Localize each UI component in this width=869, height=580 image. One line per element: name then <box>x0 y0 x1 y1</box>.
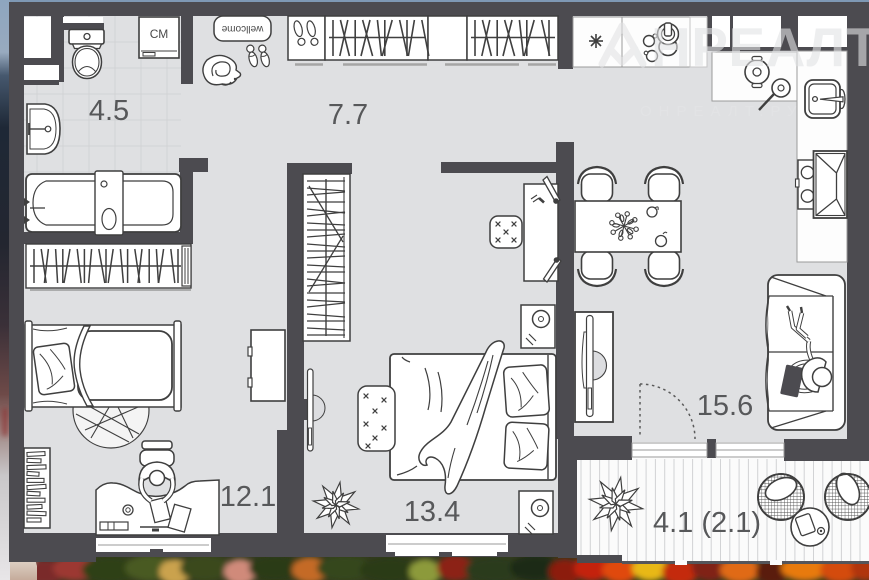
svg-text:4.1 (2.1): 4.1 (2.1) <box>653 507 761 539</box>
svg-text:НРЕАЛТ: НРЕАЛТ <box>651 16 869 78</box>
svg-text:4.5: 4.5 <box>89 95 129 127</box>
svg-text:7.7: 7.7 <box>328 99 368 131</box>
svg-text:wellcome: wellcome <box>221 23 264 34</box>
svg-text:12.1: 12.1 <box>220 481 276 513</box>
svg-text:СМ: СМ <box>150 27 169 41</box>
svg-text:ОНРЕАЛТ.РУ: ОНРЕАЛТ.РУ <box>640 103 804 120</box>
svg-text:13.4: 13.4 <box>404 496 460 528</box>
svg-text:15.6: 15.6 <box>697 390 753 422</box>
